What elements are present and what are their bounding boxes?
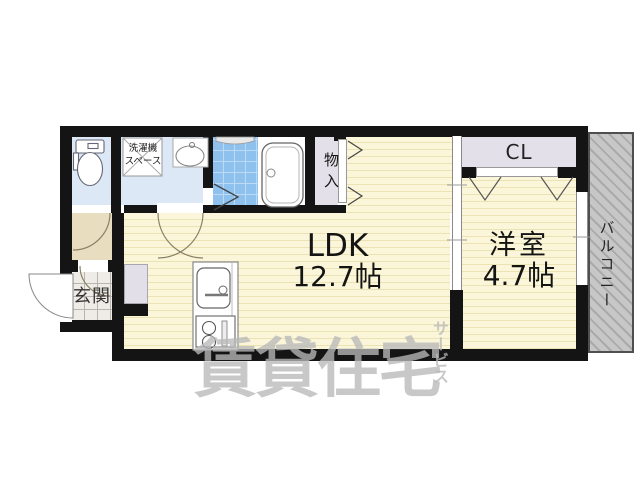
wall-washroom-bath xyxy=(203,126,213,188)
window-western-balcony xyxy=(576,192,588,285)
wall-below-bath xyxy=(203,205,346,213)
wall-hall-genkan-left xyxy=(60,260,78,272)
room-hall xyxy=(72,213,112,260)
shoe-cabinet xyxy=(124,264,148,304)
floorplan-canvas: LDK 12.7帖 洋室 4.7帖 CL 物入 玄関 洗濯機 スペース バルコニ… xyxy=(0,0,640,480)
balcony-label: バルコニー xyxy=(598,210,615,320)
wall-below-washroom xyxy=(124,205,157,213)
wall-hall-right xyxy=(112,213,124,360)
door-opening-genkan xyxy=(78,260,108,272)
wall-right-upper xyxy=(576,126,588,192)
room-bathtub-area xyxy=(258,136,305,205)
door-opening-entrance xyxy=(60,274,72,322)
window-partition-ldk-western xyxy=(452,136,462,290)
western-room-size-label: 4.7帖 xyxy=(462,261,576,292)
wall-below-shoebox xyxy=(124,304,148,316)
wall-toilet-washroom xyxy=(111,126,121,213)
wall-bottom xyxy=(112,349,588,361)
wall-partition-lower xyxy=(450,290,463,351)
wall-bath-storage xyxy=(305,126,315,213)
washer-space-label: 洗濯機 スペース xyxy=(124,142,162,169)
wall-right-lower xyxy=(576,285,588,351)
wall-cl-corner-left xyxy=(462,167,476,178)
room-ldk-upper-strip xyxy=(346,136,452,213)
wall-hall-genkan-right xyxy=(108,260,124,272)
closet-door-track xyxy=(476,167,558,177)
wall-cl-corner-right xyxy=(558,167,576,178)
room-bathroom-tiles xyxy=(213,136,258,205)
closet-label: CL xyxy=(462,141,576,163)
western-room-label: 洋室 xyxy=(462,231,576,261)
ldk-label: LDK xyxy=(250,229,425,263)
genkan-label: 玄関 xyxy=(72,287,112,307)
washer-space-line1: 洗濯機 xyxy=(124,142,162,155)
storage-label: 物入 xyxy=(315,142,339,204)
room-toilet xyxy=(72,136,111,205)
washer-space-line2: スペース xyxy=(124,155,162,168)
ldk-size-label: 12.7帖 xyxy=(250,262,425,293)
door-opening-washroom xyxy=(157,203,203,213)
wall-top xyxy=(60,126,588,137)
